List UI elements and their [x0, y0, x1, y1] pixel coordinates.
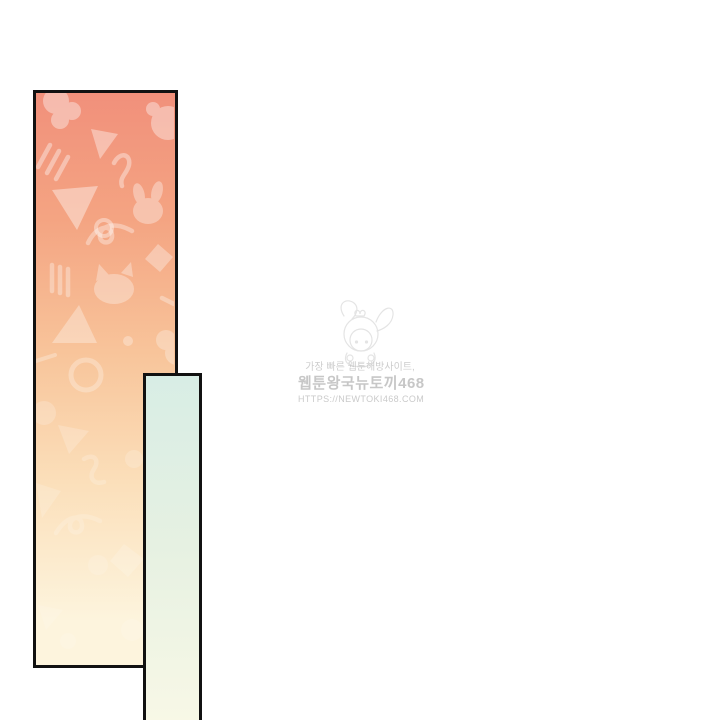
triangle4-icon: [38, 605, 63, 630]
comic-panel-narrow: [143, 373, 202, 720]
watermark-url: HTTPS://NEWTOKI468.COM: [298, 394, 422, 405]
comic-page: 가장 빠른 웹툰해방사이트, 웹툰왕국뉴토끼468 HTTPS://NEWTOK…: [0, 0, 720, 720]
dash-icon: [162, 298, 174, 304]
triangle-icon: [91, 129, 118, 159]
diamond-icon: [145, 244, 173, 272]
blob6-icon: [60, 633, 76, 649]
bear-face-icon: [146, 100, 174, 140]
triangle2-icon: [58, 425, 89, 454]
watermark-tagline: 가장 빠른 웹툰해방사이트,: [298, 362, 422, 374]
blob4-icon: [88, 555, 108, 575]
watermark-site-name: 웹툰왕국뉴토끼468: [298, 375, 422, 392]
site-watermark: 가장 빠른 웹툰해방사이트, 웹툰왕국뉴토끼468 HTTPS://NEWTOK…: [298, 296, 422, 405]
loop-squiggle2-icon: [56, 516, 100, 533]
cat-face-icon: [94, 262, 134, 304]
bunny-face-icon: [131, 180, 165, 224]
blob5-icon: [121, 619, 143, 641]
triple-lines-icon: [52, 265, 68, 295]
dot-icon: [123, 336, 133, 346]
triangle-up-icon: [52, 305, 97, 343]
squiggle-icon: [114, 155, 129, 186]
big-triangle-icon: [52, 186, 98, 230]
triangle3-icon: [36, 483, 61, 518]
zigzag-icon: [84, 457, 104, 483]
blob3-icon: [125, 450, 143, 468]
ring2-icon: [71, 360, 101, 390]
bunny-ear-bent-icon: [341, 301, 357, 319]
eye-right-icon: [365, 340, 368, 343]
blob2-icon: [36, 401, 56, 425]
hand-left-icon: [347, 355, 353, 361]
hood-outline-icon: [344, 317, 378, 351]
watermark-character-sketch: [314, 296, 406, 368]
blob-icon: [156, 330, 174, 365]
hand-right-icon: [368, 355, 374, 361]
diamond2-icon: [110, 544, 144, 577]
bunny-ear-up-icon: [376, 308, 393, 331]
eye-left-icon: [355, 340, 358, 343]
slash-lines-icon: [38, 145, 68, 179]
dash-left-icon: [36, 355, 55, 361]
bunny-blob-icon: [43, 93, 81, 129]
face-outline-icon: [350, 329, 372, 351]
